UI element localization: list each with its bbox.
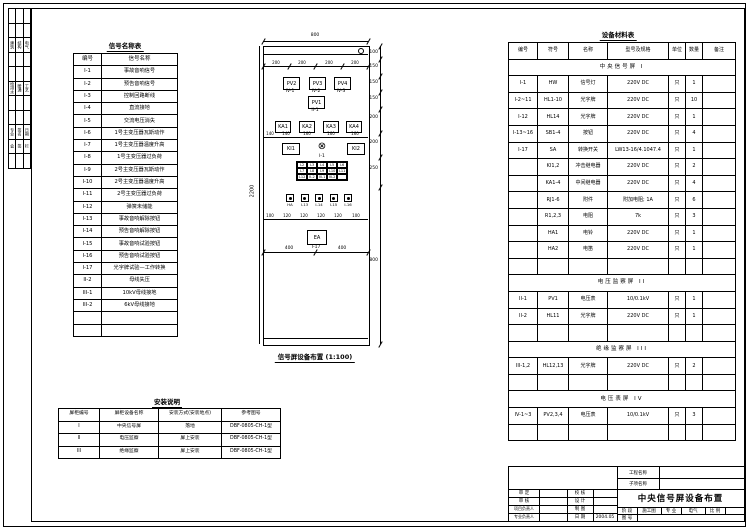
table-cell: DBF-0805-CH-1型 <box>222 434 281 447</box>
table-cell: 事故音响信号 <box>102 66 178 78</box>
review-label: 审 核 <box>509 497 539 505</box>
table-cell: 光字牌 <box>569 308 608 325</box>
table-cell <box>9 96 16 111</box>
dim-label: 140 <box>266 131 274 136</box>
table-cell: 事故音响解除按钮 <box>102 213 178 225</box>
table-row: I中央信号屏落地DBF-0805-CH-1型 <box>59 421 281 434</box>
impulse-relay-box-ki2: KI2 <box>347 143 365 155</box>
table-section-row: 绝缘监察屏 III <box>509 341 736 358</box>
table-row: KI1,2冲击继电器220V DC只2 <box>509 159 736 176</box>
cell-label: I-5 <box>330 163 335 167</box>
table-cell: 3 <box>686 408 703 425</box>
table-cell: 1 <box>686 109 703 126</box>
table-row: I-2~11HL1-10光字牌220V DC只10 <box>509 92 736 109</box>
table-cell: I-10 <box>74 176 102 188</box>
table-cell <box>16 9 23 24</box>
table-cell: I-16 <box>74 250 102 262</box>
discipline-label: 专 业 <box>661 507 681 514</box>
table-cell: 10/0.1kV <box>608 408 669 425</box>
dim-label: 200 <box>351 60 359 65</box>
cell-label: I-12 <box>299 175 306 179</box>
table-row: II电压监察屏上安装DBF-0805-CH-1型 <box>59 434 281 447</box>
table-cell: 1 <box>686 242 703 259</box>
table-cell: DBF-0805-CH-1型 <box>222 446 281 459</box>
table-cell <box>703 242 736 259</box>
table-cell <box>703 192 736 209</box>
meter-sub-label: IV-1 <box>286 89 295 94</box>
table-cell <box>686 424 703 441</box>
table-cell: 220V DC <box>608 242 669 259</box>
table-cell <box>9 52 16 67</box>
table-row: RJ1-6附件附加电阻; 1A只6 <box>509 192 736 209</box>
table-row <box>9 52 31 67</box>
table-cell <box>703 175 736 192</box>
panel-button: HA <box>283 194 297 209</box>
table-cell: 电阻 <box>569 208 608 225</box>
table-row: 电压表屏 IV <box>509 391 736 408</box>
table-cell: 事故音响试验按钮 <box>102 238 178 250</box>
table-cell: 只 <box>669 159 686 176</box>
table-cell <box>703 109 736 126</box>
dim-line <box>263 219 368 220</box>
dim-label: 150 <box>369 96 378 101</box>
table-row: I-1事故音响信号 <box>74 66 178 78</box>
table-cell: 1号主变压器过负荷 <box>102 152 178 164</box>
table-cell: 2号主变压器温度升高 <box>102 176 178 188</box>
cell-label: I-10 <box>329 169 336 173</box>
table-row: IV-1~3PV2,3,4电压表10/0.1kV只3 <box>509 408 736 425</box>
table-cell: PV2,3,4 <box>538 408 569 425</box>
table-cell: 220V DC <box>608 109 669 126</box>
table-cell: 1 <box>686 308 703 325</box>
table-cell <box>703 92 736 109</box>
table-cell <box>538 424 569 441</box>
table-row: 专业签名日期 <box>9 125 31 140</box>
dim-label: 160 <box>327 131 335 136</box>
table-cell: 电笛 <box>569 242 608 259</box>
table-row: KA1-4中间继电器220V DC只4 <box>509 175 736 192</box>
table-cell <box>102 312 178 324</box>
table-row <box>9 96 31 111</box>
table-row: I-12HL14光字牌220V DC只1 <box>509 109 736 126</box>
button-square-icon <box>286 194 294 202</box>
dim-label: 120 <box>334 213 342 218</box>
table-cell: 只 <box>669 142 686 159</box>
table-cell <box>9 67 16 82</box>
table-cell: I-1 <box>74 66 102 78</box>
table-cell: HA2 <box>538 242 569 259</box>
table-cell: 220V DC <box>608 92 669 109</box>
column-header: 单位 <box>669 43 686 60</box>
table-cell: II-2 <box>509 308 538 325</box>
table-cell: 日期 <box>23 125 30 140</box>
button-square-icon <box>301 194 309 202</box>
table-row <box>74 324 178 336</box>
table-cell: I-2 <box>74 78 102 90</box>
table-cell <box>608 325 669 342</box>
panel-top-band <box>263 54 368 55</box>
table-cell: 220V DC <box>608 358 669 375</box>
cell-label: I-6 <box>340 163 345 167</box>
table-cell <box>23 154 30 169</box>
table-cell: I-12 <box>74 201 102 213</box>
table-cell: LW13-16/4.1047.4 <box>608 142 669 159</box>
table-row: III-1,2HL12,13光字牌220V DC只2 <box>509 358 736 375</box>
scale-label: 比 例 <box>705 507 725 514</box>
table-row: I-5交流电压消失 <box>74 115 178 127</box>
table-cell: 电压表 <box>569 408 608 425</box>
table-cell: 弹簧未储能 <box>102 201 178 213</box>
table-cell: R1,2,3 <box>538 208 569 225</box>
table-cell: HL11 <box>538 308 569 325</box>
light-plate-cell: III-1 <box>317 174 327 180</box>
draft-label: 制 图 <box>567 505 593 513</box>
table-cell: 光字牌 <box>569 358 608 375</box>
table-cell: 10/0.1kV <box>608 291 669 308</box>
right-table-title: 设备材料表 <box>600 29 637 41</box>
table-cell <box>509 242 538 259</box>
dim-label: 100 <box>266 213 274 218</box>
table-cell: 信号灯 <box>569 76 608 93</box>
table-cell: 4 <box>686 125 703 142</box>
table-cell <box>538 374 569 391</box>
table-cell: I-1 <box>509 76 538 93</box>
table-cell: I-6 <box>74 127 102 139</box>
table-cell: 只 <box>669 175 686 192</box>
discipline-lead-label: 专业负责人 <box>509 513 539 521</box>
table-cell <box>509 424 538 441</box>
button-square-icon <box>315 194 323 202</box>
light-plate-cell <box>337 174 347 180</box>
cell-label: I-3 <box>310 163 315 167</box>
table-cell <box>703 291 736 308</box>
table-cell: 只 <box>669 408 686 425</box>
table-cell: I-9 <box>74 164 102 176</box>
table-cell <box>102 324 178 336</box>
table-cell: 专业 <box>9 125 16 140</box>
dim-label: 150 <box>369 80 378 85</box>
table-row <box>509 258 736 275</box>
table-cell: I-2~11 <box>509 92 538 109</box>
panel-button: I-13 <box>298 194 312 209</box>
table-cell: I-5 <box>74 115 102 127</box>
impulse-relay-box-ki1: KI1 <box>282 143 300 155</box>
table-cell: 1 <box>686 291 703 308</box>
table-cell: 220V DC <box>608 159 669 176</box>
stage-label: 阶 段 <box>617 507 637 514</box>
table-cell <box>74 312 102 324</box>
table-row: 绝缘监察屏 III <box>509 341 736 358</box>
cell-label: I-14 <box>315 202 322 207</box>
table-cell <box>23 67 30 82</box>
table-cell: 1 <box>686 76 703 93</box>
table-row <box>9 110 31 125</box>
table-cell <box>569 258 608 275</box>
table-cell: I-13~16 <box>509 125 538 142</box>
table-cell <box>703 308 736 325</box>
table-row: 电压监察屏 II <box>509 275 736 292</box>
table-cell: 只 <box>669 308 686 325</box>
table-row: I-15事故音响试验按钮 <box>74 238 178 250</box>
table-cell <box>509 225 538 242</box>
table-cell: I-3 <box>74 90 102 102</box>
table-cell: 直流接地 <box>102 103 178 115</box>
panel-corner-hole-icon <box>358 48 364 54</box>
table-cell: 中央信号屏 <box>100 421 159 434</box>
table-cell: 6kV母线接地 <box>102 299 178 311</box>
table-cell <box>569 374 608 391</box>
cell-label: I-4 <box>320 163 325 167</box>
table-row: HA2电笛220V DC只1 <box>509 242 736 259</box>
signoff-strip: 建筑结构电气给排水暖通工艺专业签名日期会签栏 <box>8 8 31 169</box>
table-cell: 220V DC <box>608 76 669 93</box>
table-cell <box>23 110 30 125</box>
dim-line-top <box>263 41 368 42</box>
dim-line <box>263 137 368 138</box>
table-cell <box>569 325 608 342</box>
date-value: 2004.05 <box>593 513 617 521</box>
light-plate-cell: II-2 <box>307 174 317 180</box>
dim-label: 160 <box>351 131 359 136</box>
panel-bottom-band <box>263 338 368 339</box>
check-label: 校 核 <box>567 489 593 497</box>
installation-table: 屏柜编号屏柜设备名称安装方式(安装地点)参考图号I中央信号屏落地DBF-0805… <box>58 408 281 459</box>
table-cell: 光字牌 <box>569 92 608 109</box>
table-row: I-3控制回路断线 <box>74 90 178 102</box>
table-cell: 只 <box>669 225 686 242</box>
table-row <box>509 325 736 342</box>
table-cell: 2 <box>686 358 703 375</box>
meter-sub-label: IV-2 <box>312 89 321 94</box>
bell-box-ea: EA <box>307 230 327 245</box>
column-header: 屏柜编号 <box>59 409 100 422</box>
drawing-number-label: 图 号 <box>617 514 637 521</box>
light-plate-cell: I-12 <box>297 174 307 180</box>
dim-width-label: 800 <box>311 33 320 38</box>
table-cell: 光字牌 <box>569 109 608 126</box>
table-cell <box>686 258 703 275</box>
table-row: I-13~16SB1-4按钮220V DC只4 <box>509 125 736 142</box>
table-cell <box>703 76 736 93</box>
table-cell: II-1 <box>509 291 538 308</box>
table-cell: 只 <box>669 125 686 142</box>
table-row <box>9 9 31 24</box>
table-cell: 220V DC <box>608 308 669 325</box>
table-cell: 转换开关 <box>569 142 608 159</box>
table-cell <box>703 424 736 441</box>
dim-label: 160 <box>303 131 311 136</box>
cell-label: I-13 <box>301 202 308 207</box>
table-cell <box>16 96 23 111</box>
title-block: 工程名称 子项名称 审 定 审 核 项目负责人 专业负责人 校 核 设 计 制 … <box>508 466 745 522</box>
table-cell: 电铃 <box>569 225 608 242</box>
table-cell: 只 <box>669 291 686 308</box>
table-cell: 7k <box>608 208 669 225</box>
table-cell: 3 <box>686 208 703 225</box>
drawing-title: 中央信号屏设备布置 <box>617 489 744 507</box>
dim-label: 800 <box>369 258 378 263</box>
table-cell: PV1 <box>538 291 569 308</box>
table-cell: I-4 <box>74 103 102 115</box>
table-cell: 电气 <box>23 38 30 53</box>
cell-label: I-7 <box>300 169 305 173</box>
table-cell: 暖通 <box>16 81 23 96</box>
table-cell <box>509 258 538 275</box>
table-row: I-12弹簧未储能 <box>74 201 178 213</box>
table-cell: 附加电阻; 1A <box>608 192 669 209</box>
table-cell: 预告音响解除按钮 <box>102 226 178 238</box>
dim-label: 250 <box>369 166 378 171</box>
button-square-icon <box>330 194 338 202</box>
panel-button: I-15 <box>327 194 341 209</box>
table-row: R1,2,3电阻7k只3 <box>509 208 736 225</box>
table-cell: 只 <box>669 208 686 225</box>
table-cell: 10 <box>686 92 703 109</box>
table-cell: 1号主变压器瓦斯动作 <box>102 127 178 139</box>
button-square-icon <box>344 194 352 202</box>
table-cell: 只 <box>669 92 686 109</box>
dim-label: 200 <box>272 60 280 65</box>
table-cell: KA1-4 <box>538 175 569 192</box>
table-row: 会签栏 <box>9 139 31 154</box>
table-cell: 冲击继电器 <box>569 159 608 176</box>
table-header-row: 编号信号名称 <box>74 54 178 66</box>
table-cell: II <box>59 434 100 447</box>
table-section-row: 电压监察屏 II <box>509 275 736 292</box>
table-cell: 交流电压消失 <box>102 115 178 127</box>
cell-label: I-9 <box>320 169 325 173</box>
cell-label: I-11 <box>339 169 346 173</box>
column-header: 名称 <box>569 43 608 60</box>
table-cell <box>509 374 538 391</box>
table-row <box>9 23 31 38</box>
table-cell: 工艺 <box>23 81 30 96</box>
table-row: II-2母线失压 <box>74 275 178 287</box>
dim-label: 400 <box>338 246 347 251</box>
table-cell: 控制回路断线 <box>102 90 178 102</box>
column-header: 备注 <box>703 43 736 60</box>
table-cell <box>9 9 16 24</box>
titleblock-line <box>725 507 726 514</box>
discipline-value: 电气 <box>681 507 705 514</box>
table-cell: 预告音响信号 <box>102 78 178 90</box>
table-cell: 屏上安装 <box>159 434 222 447</box>
table-cell: 落地 <box>159 421 222 434</box>
cell-label: HA <box>287 202 292 207</box>
table-cell: III-2 <box>74 299 102 311</box>
table-cell: I-13 <box>74 213 102 225</box>
project-manager-label: 项目负责人 <box>509 505 539 513</box>
table-cell <box>538 325 569 342</box>
table-cell: 220V DC <box>608 175 669 192</box>
panel-caption: 信号屏设备布置 (1:100) <box>275 351 355 363</box>
table-cell: I-17 <box>509 142 538 159</box>
table-cell: 1 <box>686 225 703 242</box>
table-section-row: 电压表屏 IV <box>509 391 736 408</box>
table-cell <box>608 424 669 441</box>
table-cell <box>23 9 30 24</box>
table-cell <box>23 96 30 111</box>
table-cell: RJ1-6 <box>538 192 569 209</box>
table-cell <box>16 154 23 169</box>
table-row: 建筑结构电气 <box>9 38 31 53</box>
table-cell <box>16 52 23 67</box>
table-cell: 母线失压 <box>102 275 178 287</box>
table-cell: 附件 <box>569 192 608 209</box>
table-cell <box>608 374 669 391</box>
dim-height-label: 2200 <box>249 185 255 198</box>
column-header: 参考图号 <box>222 409 281 422</box>
table-cell: 只 <box>669 192 686 209</box>
table-cell <box>703 358 736 375</box>
table-cell <box>9 154 16 169</box>
table-cell: III-1 <box>74 287 102 299</box>
light-plate-cell: III-2 <box>327 174 337 180</box>
cell-label: I-2 <box>300 163 305 167</box>
column-header: 符号 <box>538 43 569 60</box>
cell-label: I-8 <box>310 169 315 173</box>
table-row: III-110kV母线接地 <box>74 287 178 299</box>
design-label: 设 计 <box>567 497 593 505</box>
light-plate-grid: I-2I-3I-4I-5I-6I-7I-8I-9I-10I-11I-12II-2… <box>296 161 348 181</box>
table-row: 中央信号屏 I <box>509 59 736 76</box>
table-cell: 6 <box>686 192 703 209</box>
cell-label: III-1 <box>319 175 326 179</box>
dim-label: 120 <box>300 213 308 218</box>
table-cell: 屏上安装 <box>159 446 222 459</box>
table-header-row: 屏柜编号屏柜设备名称安装方式(安装地点)参考图号 <box>59 409 281 422</box>
table-cell <box>23 23 30 38</box>
table-row: I-81号主变压器过负荷 <box>74 152 178 164</box>
table-cell: 签 <box>16 139 23 154</box>
table-cell <box>569 424 608 441</box>
dim-label: 120 <box>283 213 291 218</box>
dim-label: 120 <box>317 213 325 218</box>
table-row <box>9 154 31 169</box>
dim-label: 200 <box>369 115 378 120</box>
table-cell <box>509 192 538 209</box>
table-cell <box>703 208 736 225</box>
titleblock-line <box>659 467 660 489</box>
table-cell <box>703 325 736 342</box>
table-cell: 只 <box>669 242 686 259</box>
table-cell: I-14 <box>74 226 102 238</box>
table-cell: 电压监察 <box>100 434 159 447</box>
table-row: I-71号主变压器温度升高 <box>74 140 178 152</box>
table-cell <box>509 325 538 342</box>
table-cell: 10kV母线接地 <box>102 287 178 299</box>
table-cell <box>669 424 686 441</box>
table-cell: 2号主变压器瓦斯动作 <box>102 164 178 176</box>
table-cell: 2 <box>686 159 703 176</box>
column-header: 信号名称 <box>102 54 178 66</box>
table-row: I-17光字牌试验—工作转换 <box>74 263 178 275</box>
column-header: 编号 <box>74 54 102 66</box>
table-cell: 光字牌试验—工作转换 <box>102 263 178 275</box>
table-row: III绝缘监察屏上安装DBF-0805-CH-1型 <box>59 446 281 459</box>
date-label: 日 期 <box>567 513 593 521</box>
dim-label: 100 <box>352 213 360 218</box>
table-cell <box>669 258 686 275</box>
table-cell <box>669 325 686 342</box>
table-cell: 会 <box>9 139 16 154</box>
table-row <box>74 312 178 324</box>
table-cell <box>703 225 736 242</box>
table-cell: I-17 <box>74 263 102 275</box>
table-cell <box>686 374 703 391</box>
table-cell: I-11 <box>74 189 102 201</box>
cell-label: II-2 <box>309 175 315 179</box>
